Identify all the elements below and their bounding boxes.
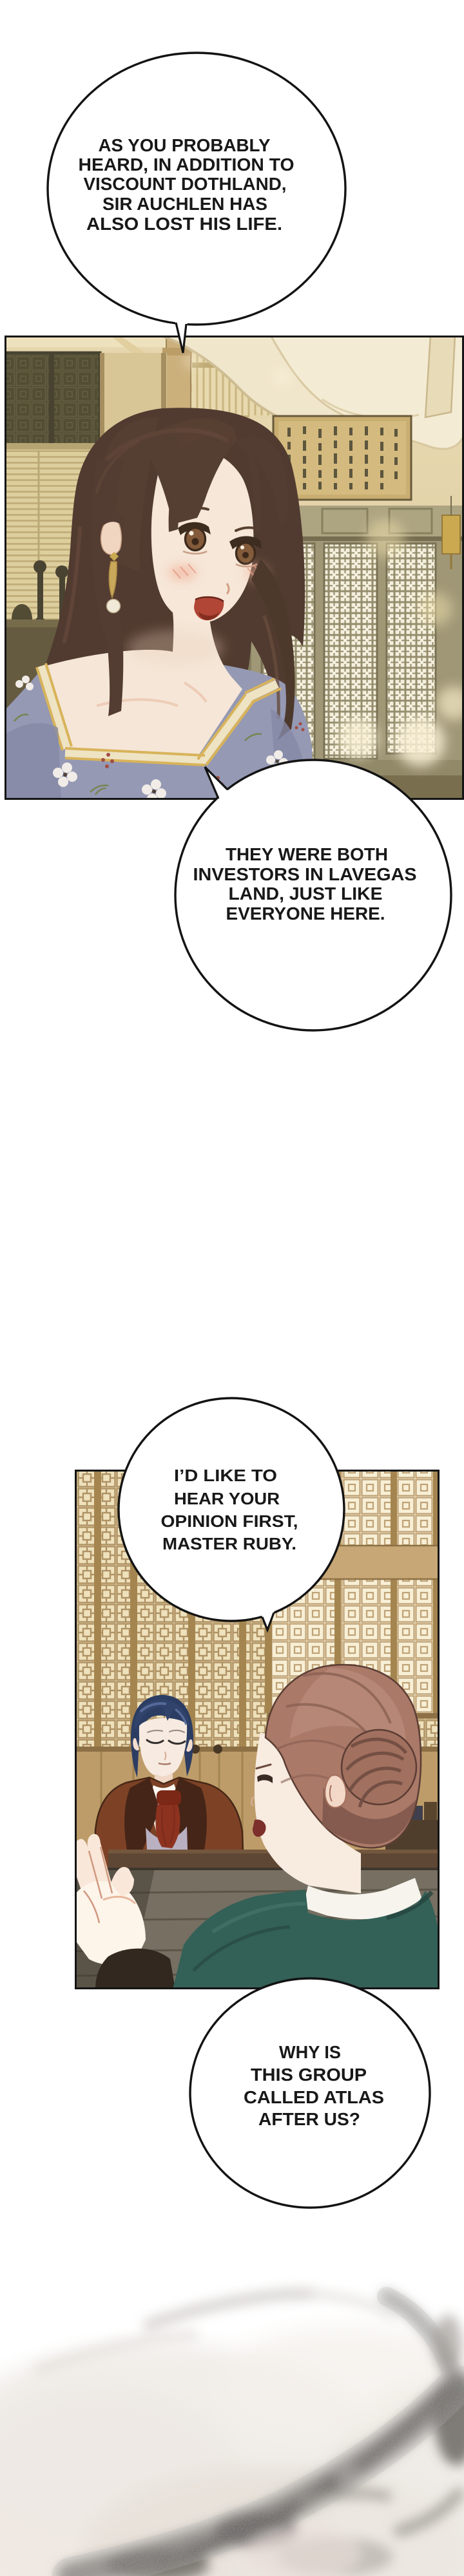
svg-text:SIR AUCHLEN HAS: SIR AUCHLEN HAS — [102, 194, 267, 214]
svg-text:MASTER RUBY.: MASTER RUBY. — [162, 1534, 296, 1553]
svg-text:VISCOUNT DOTHLAND,: VISCOUNT DOTHLAND, — [84, 174, 287, 194]
svg-text:HEAR YOUR: HEAR YOUR — [174, 1489, 280, 1508]
svg-text:CALLED ATLAS: CALLED ATLAS — [244, 2087, 384, 2107]
svg-text:WHY IS: WHY IS — [279, 2042, 341, 2062]
svg-text:OPINION FIRST,: OPINION FIRST, — [161, 1511, 298, 1531]
svg-text:THEY WERE BOTH: THEY WERE BOTH — [226, 844, 388, 864]
svg-text:INVESTORS IN LAVEGAS: INVESTORS IN LAVEGAS — [193, 864, 417, 884]
svg-text:HEARD, IN ADDITION TO: HEARD, IN ADDITION TO — [79, 155, 295, 175]
svg-text:EVERYONE HERE.: EVERYONE HERE. — [226, 904, 385, 923]
svg-text:LAND, JUST LIKE: LAND, JUST LIKE — [229, 884, 383, 904]
svg-text:ALSO LOST HIS LIFE.: ALSO LOST HIS LIFE. — [86, 214, 282, 234]
svg-text:THIS GROUP: THIS GROUP — [251, 2065, 367, 2085]
svg-text:I’D LIKE TO: I’D LIKE TO — [174, 1466, 277, 1485]
svg-text:AFTER US?: AFTER US? — [258, 2109, 360, 2129]
svg-text:AS YOU PROBABLY: AS YOU PROBABLY — [99, 135, 271, 155]
